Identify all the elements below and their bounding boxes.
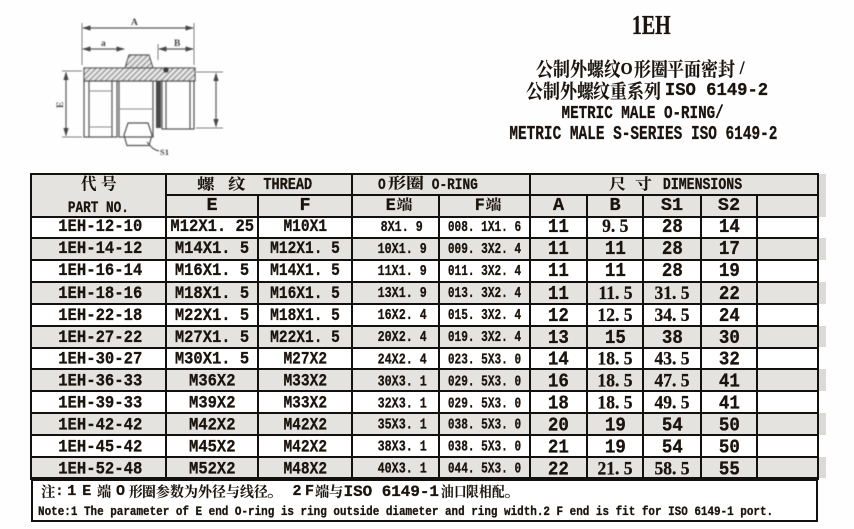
- svg-text:a: a: [101, 39, 106, 49]
- svg-text:S1: S1: [160, 147, 169, 157]
- svg-text:A: A: [131, 18, 138, 28]
- svg-text:E: E: [56, 102, 66, 108]
- svg-text:B: B: [174, 39, 181, 49]
